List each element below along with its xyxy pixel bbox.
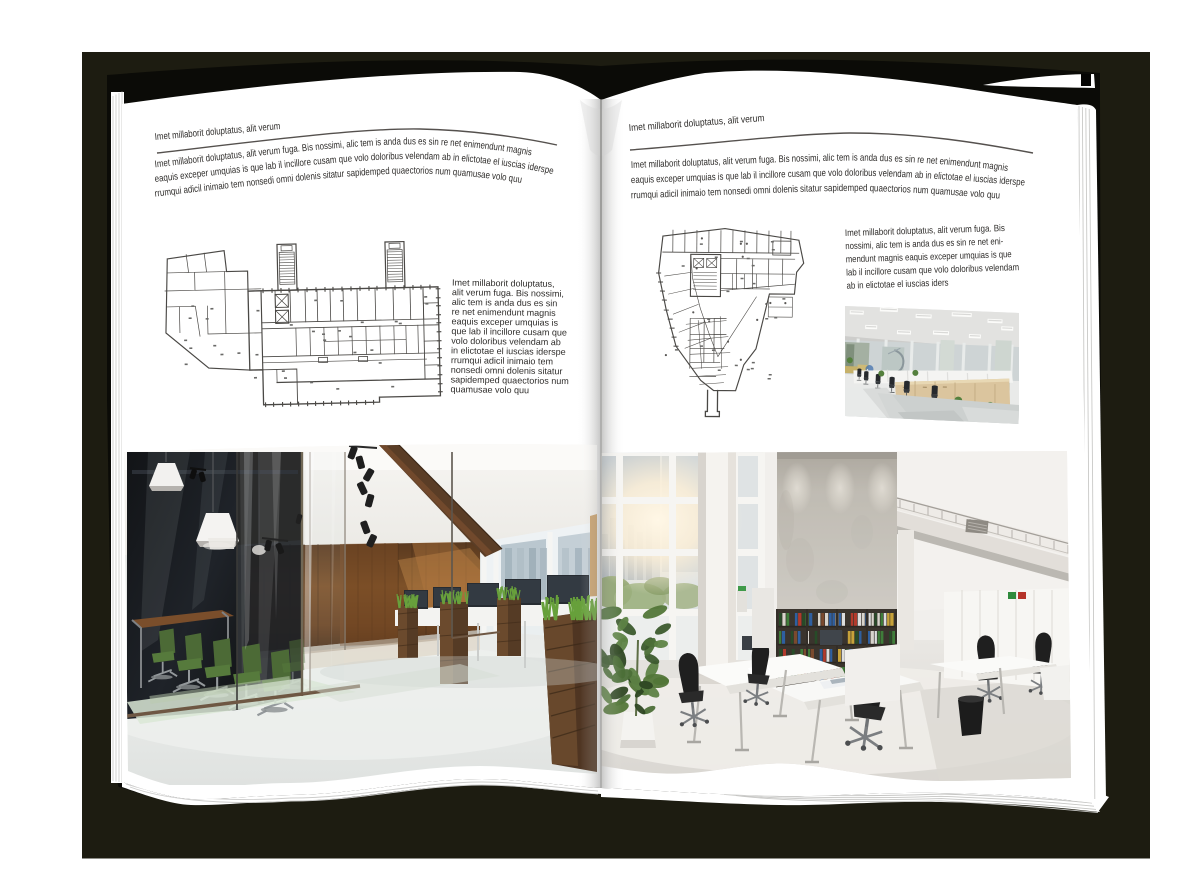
svg-text:quamusae volo quu: quamusae volo quu xyxy=(450,384,529,395)
